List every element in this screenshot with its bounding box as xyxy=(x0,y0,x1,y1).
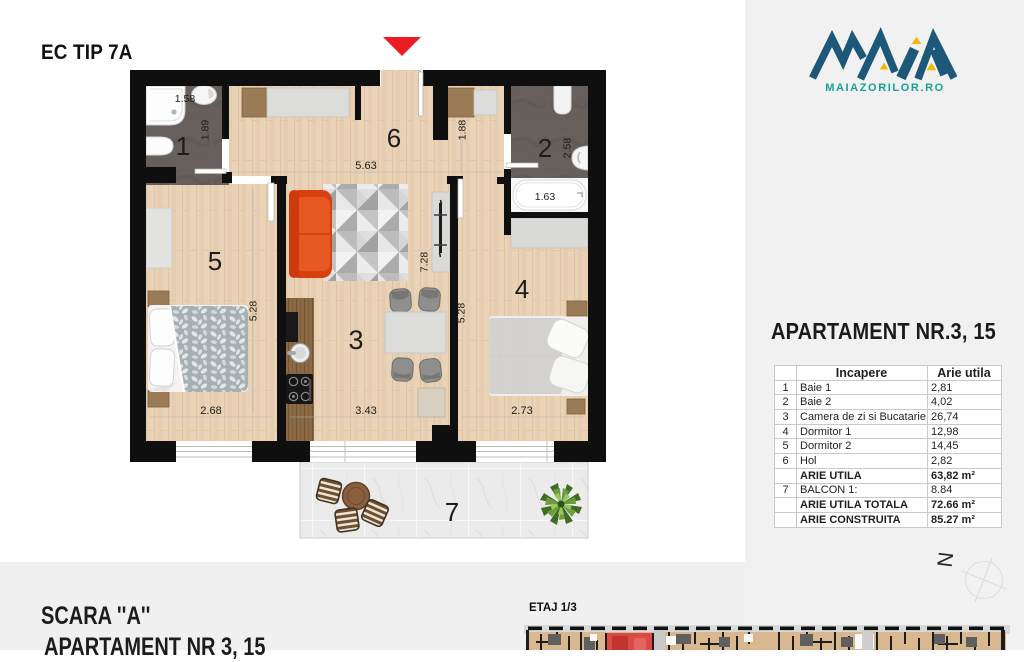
svg-text:1.58: 1.58 xyxy=(175,93,196,105)
svg-text:N: N xyxy=(932,551,957,569)
svg-text:5.28: 5.28 xyxy=(456,303,468,324)
svg-text:1.88: 1.88 xyxy=(457,120,469,141)
svg-text:5.28: 5.28 xyxy=(248,301,260,322)
svg-text:1.89: 1.89 xyxy=(200,120,212,141)
svg-text:2.73: 2.73 xyxy=(511,405,532,417)
svg-text:5: 5 xyxy=(208,246,222,276)
svg-text:2.58: 2.58 xyxy=(562,138,574,159)
svg-text:6: 6 xyxy=(387,123,401,153)
svg-text:3: 3 xyxy=(348,325,363,355)
svg-text:1: 1 xyxy=(176,131,190,161)
svg-text:2: 2 xyxy=(538,133,552,163)
svg-text:3.43: 3.43 xyxy=(355,405,376,417)
svg-text:5.63: 5.63 xyxy=(355,160,376,172)
svg-text:2.68: 2.68 xyxy=(200,405,221,417)
svg-text:1.63: 1.63 xyxy=(535,191,556,203)
svg-text:7.28: 7.28 xyxy=(419,252,431,273)
svg-text:4: 4 xyxy=(515,274,529,304)
svg-text:7: 7 xyxy=(445,497,459,527)
svg-text:MAIAZORILOR.RO: MAIAZORILOR.RO xyxy=(825,82,945,94)
